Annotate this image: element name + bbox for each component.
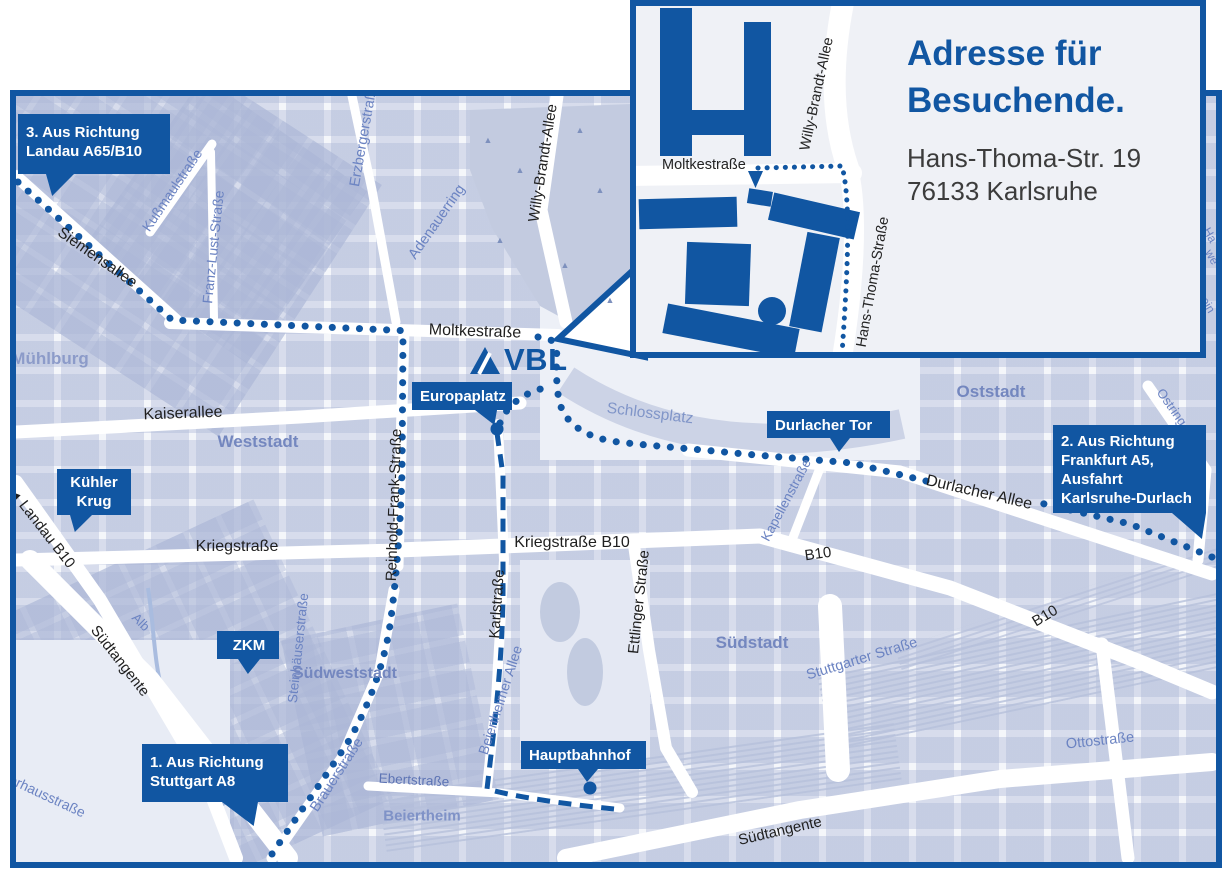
marker-durlacher-tor-label: Durlacher Tor [775, 417, 872, 434]
street-label-ostring-nord: Ostring [1154, 386, 1190, 429]
inset-street-label-moltkestrasse: Moltkestraße [662, 157, 746, 173]
street-label-franz-lust: Franz-Lust-Straße [199, 190, 227, 305]
marker-kuehler-tail [70, 515, 92, 532]
street-label-steinhaeuserstrasse: Steinhäuserstraße [285, 592, 311, 703]
inset-address: Hans-Thoma-Str. 19 76133 Karlsruhe [907, 142, 1141, 208]
marker-kuehler-line2: Krug [77, 493, 112, 510]
street-label-suedtangente-sued: Südtangente [737, 813, 824, 849]
marker-kuehler-krug: Kühler Krug [57, 469, 131, 515]
street-label-karlstrasse: Karlstraße [486, 569, 508, 639]
inset-building [789, 232, 840, 333]
district-label-muehlburg: Mühlburg [16, 349, 89, 369]
marker-europaplatz-tail [475, 410, 497, 425]
district-label-oststadt: Oststadt [957, 382, 1026, 402]
inset-title-line2: Besuchende. [907, 81, 1125, 120]
inset-street-willy-brandt [835, 6, 848, 168]
street-label-ottostrasse: Ottostraße [1065, 729, 1135, 752]
street-label-b10-mitte: B10 [804, 544, 833, 565]
marker-stuttgart-line1: 1. Aus Richtung [150, 754, 264, 771]
vbl-logo-text: VBL [504, 342, 568, 378]
marker-frankfurt-line2: Frankfurt A5, [1061, 452, 1154, 469]
street-label-b10-sued: B10 [1029, 602, 1061, 630]
inset-title-line1: Adresse für [907, 34, 1102, 73]
marker-zkm-tail [238, 659, 260, 674]
street-label-willy-brandt-allee: Willy-Brandt-Allee [525, 103, 560, 223]
inset-building-round [758, 297, 786, 325]
inset-building [747, 188, 773, 207]
street-label-kaiserallee: Kaiserallee [143, 404, 223, 425]
tree-icon: ▲ [606, 295, 615, 305]
inset-building [685, 242, 751, 306]
marker-hauptbahnhof: Hauptbahnhof [521, 741, 646, 769]
marker-frankfurt-a5: 2. Aus Richtung Frankfurt A5, Ausfahrt K… [1053, 425, 1206, 513]
district-label-suedstadt: Südstadt [716, 633, 789, 653]
inset-building [744, 22, 771, 156]
street-label-siemensallee: Siemensallee [54, 224, 141, 292]
vbl-logo: VBL [468, 342, 568, 378]
street-label-moltkestrasse: Moltkestraße [428, 321, 521, 342]
street-label-suedtangente-west: Südtangente [87, 622, 153, 700]
inset-title: Adresse für Besuchende. [907, 30, 1125, 124]
address-inset-callout: Moltkestraße Willy-Brandt-Allee Hans-Tho… [630, 0, 1206, 358]
street-label-adenauerring: Adenauerring [405, 182, 468, 263]
marker-frankfurt-line3: Ausfahrt [1061, 471, 1123, 488]
inset-building [660, 110, 771, 135]
inset-building [639, 197, 738, 230]
tree-icon: ▲ [516, 165, 525, 175]
marker-frankfurt-line4: Karlsruhe-Durlach [1061, 490, 1192, 507]
marker-hauptbahnhof-label: Hauptbahnhof [529, 747, 631, 764]
tree-icon: ▲ [484, 135, 493, 145]
marker-stuttgart-a8: 1. Aus Richtung Stuttgart A8 [142, 744, 288, 802]
street-label-erzbergerstrasse: Erzbergerstraße [347, 96, 381, 188]
inset-address-line1: Hans-Thoma-Str. 19 [907, 143, 1141, 173]
street-label-ebertstrasse: Ebertstraße [378, 771, 449, 790]
marker-zkm-label: ZKM [233, 637, 266, 654]
street-label-stuttgarter-strasse: Stuttgarter Straße [805, 635, 920, 684]
street-label-kriegstrasse: Kriegstraße [196, 538, 279, 556]
tree-icon: ▲ [561, 260, 570, 270]
vbl-logo-triangle-icon [468, 344, 502, 376]
marker-stuttgart-tail [222, 802, 258, 826]
street-label-durlacher-allee: Durlacher Allee [924, 472, 1034, 514]
marker-frankfurt-tail [1172, 513, 1206, 539]
marker-durlacher-tor: Durlacher Tor [767, 411, 890, 438]
district-label-beiertheim: Beiertheim [383, 808, 461, 825]
marker-hauptbahnhof-tail [578, 769, 598, 782]
marker-durlacher-tor-tail [830, 438, 850, 452]
marker-landau-line1: 3. Aus Richtung [26, 124, 140, 141]
place-label-schlossplatz: Schlossplatz [606, 400, 695, 428]
street-label-kapellenstrasse: Kapellenstraße [758, 456, 814, 543]
inset-address-line2: 76133 Karlsruhe [907, 176, 1098, 206]
marker-kuehler-line1: Kühler [70, 474, 118, 491]
marker-europaplatz: Europaplatz [412, 382, 512, 410]
district-label-suedweststadt: Südweststadt [293, 665, 397, 683]
street-label-ettlinger: Ettlinger Straße [625, 549, 653, 654]
street-label-kriegstrasse-b10: Kriegstraße B10 [514, 534, 630, 552]
street-label-reinhold-frank: Reinhold-Frank-Straße [383, 428, 405, 581]
marker-landau-tail [46, 174, 74, 196]
street-label-pulverhausstrasse: Pulverhausstraße [16, 760, 88, 821]
street-label-beiertheimer-allee: Beiertheimer Allee [475, 643, 525, 756]
marker-europaplatz-label: Europaplatz [420, 388, 506, 405]
street-label-brauerstrasse: Brauerstraße [307, 735, 367, 815]
marker-zkm: ZKM [217, 631, 279, 659]
tree-icon: ▲ [596, 185, 605, 195]
inset-street-hans-thoma [842, 168, 854, 352]
marker-stuttgart-line2: Stuttgart A8 [150, 773, 235, 790]
marker-frankfurt-line1: 2. Aus Richtung [1061, 433, 1175, 450]
tree-icon: ▲ [496, 235, 505, 245]
tree-icon: ▲ [576, 125, 585, 135]
marker-landau-a65: 3. Aus Richtung Landau A65/B10 [18, 114, 170, 174]
street-label-alb: Alb [129, 610, 153, 634]
marker-landau-line2: Landau A65/B10 [26, 143, 142, 160]
district-label-weststadt: Weststadt [218, 432, 299, 452]
inset-street-moltke [636, 173, 852, 176]
